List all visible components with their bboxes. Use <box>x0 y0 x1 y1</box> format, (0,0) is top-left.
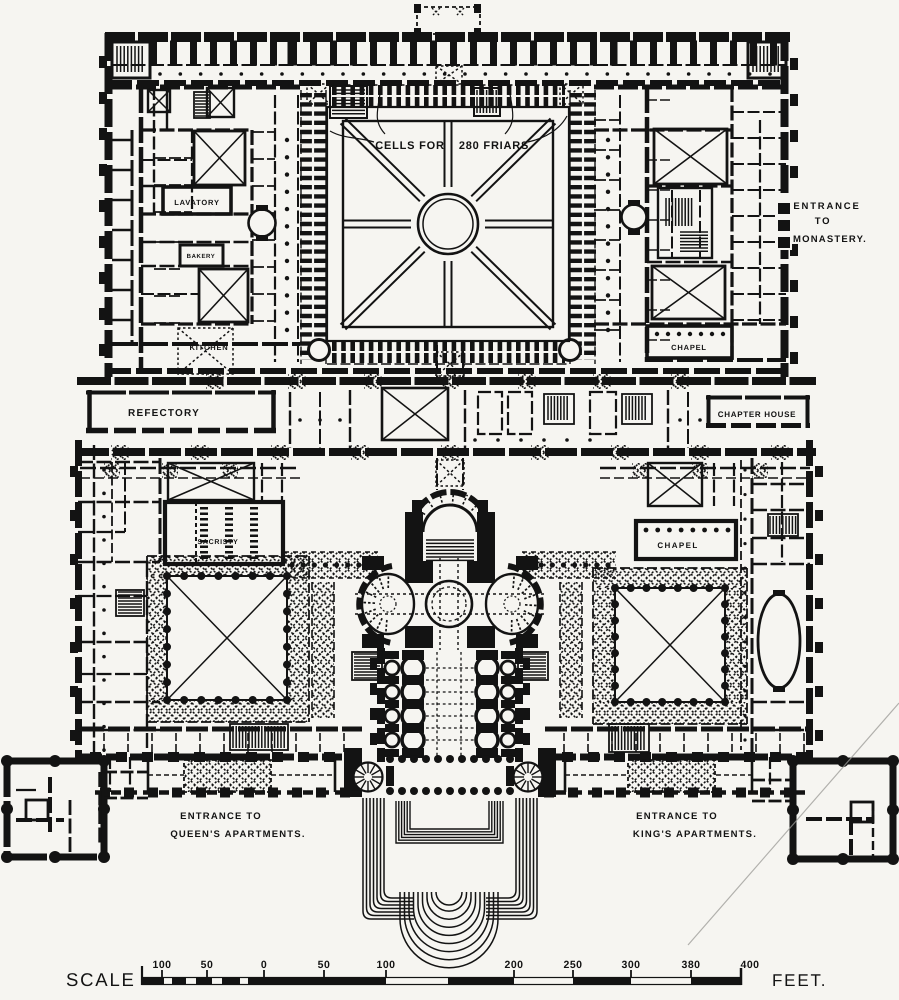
svg-text:280 FRIARS: 280 FRIARS <box>459 140 529 152</box>
svg-text:MONASTERY.: MONASTERY. <box>793 234 867 245</box>
svg-text:CHAPEL: CHAPEL <box>657 541 698 550</box>
svg-text:400: 400 <box>740 959 759 971</box>
svg-text:CELLS FOR: CELLS FOR <box>375 140 445 152</box>
svg-text:TO: TO <box>815 216 832 227</box>
svg-text:KITCHEN: KITCHEN <box>190 343 229 352</box>
svg-text:200: 200 <box>504 959 523 971</box>
svg-text:QUEEN'S APARTMENTS.: QUEEN'S APARTMENTS. <box>170 829 305 840</box>
svg-text:SCALE: SCALE <box>66 969 136 990</box>
svg-text:ENTRANCE TO: ENTRANCE TO <box>636 811 718 822</box>
svg-text:ENTRANCE: ENTRANCE <box>793 201 860 212</box>
svg-text:LAVATORY: LAVATORY <box>174 198 220 207</box>
svg-text:250: 250 <box>563 959 582 971</box>
svg-text:300: 300 <box>621 959 640 971</box>
svg-text:50: 50 <box>318 959 331 971</box>
svg-text:SACRISTY: SACRISTY <box>198 539 239 546</box>
svg-text:100: 100 <box>376 959 395 971</box>
svg-text:CHAPEL: CHAPEL <box>671 343 707 352</box>
svg-text:100: 100 <box>152 959 171 971</box>
svg-text:KING'S APARTMENTS.: KING'S APARTMENTS. <box>633 829 757 840</box>
svg-text:BAKERY: BAKERY <box>187 253 216 260</box>
svg-text:CHAPTER HOUSE: CHAPTER HOUSE <box>718 410 796 419</box>
svg-text:REFECTORY: REFECTORY <box>128 408 200 419</box>
svg-text:FEET.: FEET. <box>772 971 827 990</box>
svg-text:50: 50 <box>201 959 214 971</box>
svg-text:380: 380 <box>681 959 700 971</box>
svg-text:ENTRANCE TO: ENTRANCE TO <box>180 811 262 822</box>
svg-text:0: 0 <box>261 959 267 971</box>
